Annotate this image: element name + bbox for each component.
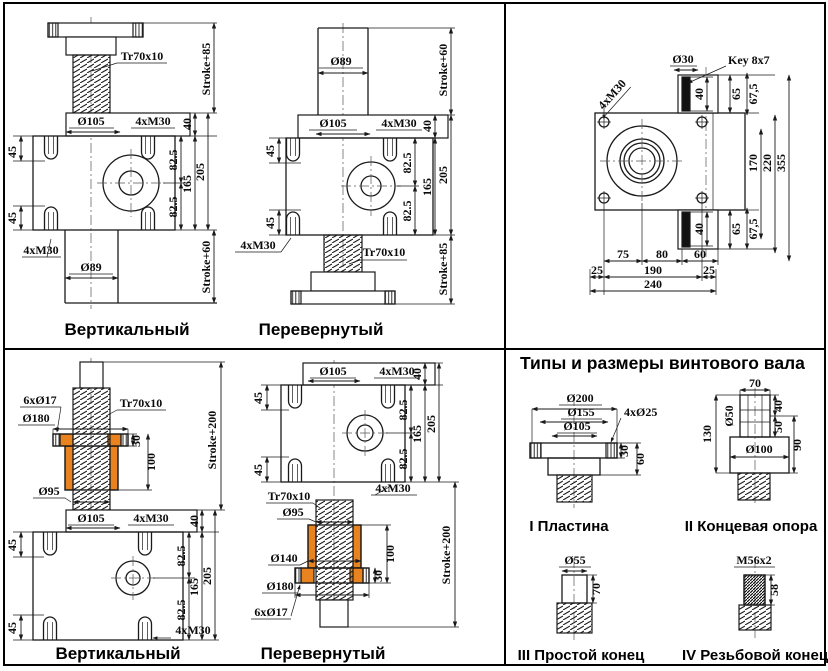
worm-shaft-bore xyxy=(342,410,388,456)
dim-label: 45 xyxy=(263,145,277,157)
dim-label: 45 xyxy=(5,212,19,224)
dim-label: Key 8x7 xyxy=(728,53,770,67)
dim-label: 130 xyxy=(700,425,714,443)
dim-label: 82.5 xyxy=(166,197,180,218)
caption-type-plain-end: III Простой конец xyxy=(518,647,645,664)
dim-label: Ø30 xyxy=(672,52,693,66)
dim-label: 220 xyxy=(760,154,774,172)
worm-shaft-bore xyxy=(97,149,165,217)
caption-type-plate: I Пластина xyxy=(529,518,609,535)
drawing-inverted-jack-safety-nut: Ø105 4xM30 45 45 82.5 82.5 40 165 205 4x… xyxy=(251,360,459,663)
caption-inverted: Перевернутый xyxy=(259,320,384,339)
dim-label: 45 xyxy=(5,146,19,158)
bolt-holes xyxy=(597,115,709,205)
dim-label: Ø55 xyxy=(564,553,585,567)
screw-rod-end xyxy=(320,600,348,627)
dim-label: Ø95 xyxy=(282,505,303,519)
dim-label: 70 xyxy=(589,583,603,595)
drawing-inverted-screw-jack: Ø89 Ø105 4xM30 45 45 4xM30 Tr70x10 82.5 … xyxy=(235,23,455,339)
dim-label: 165 xyxy=(180,175,194,193)
dim-label: 4xM30 xyxy=(240,238,275,252)
dim-label: Ø89 xyxy=(80,260,101,274)
screw-thread xyxy=(73,55,110,113)
dim-label: 4xØ25 xyxy=(624,405,657,419)
dim-label: 45 xyxy=(251,392,265,404)
dim-label: 165 xyxy=(420,178,434,196)
dim-label: 40 xyxy=(692,223,706,235)
worm-shaft-bore xyxy=(111,556,155,600)
plate xyxy=(530,443,617,458)
dim-label: 82.5 xyxy=(166,150,180,171)
dim-label: Stroke+60 xyxy=(199,241,213,294)
dim-label: 4xM30 xyxy=(381,116,416,130)
dim-label: Ø89 xyxy=(330,54,351,68)
shaft-end-type-end-support: 70 Ø50 130 40 50 Ø100 90 II Концевая опо… xyxy=(685,376,818,535)
screw-thread xyxy=(557,603,592,633)
panel-jacks-standard: Tr70x10 Ø105 4xM30 45 45 4xM30 Ø89 82.5 … xyxy=(3,3,505,348)
screw-thread xyxy=(739,605,771,630)
screw-thread xyxy=(324,235,362,272)
screw-thread xyxy=(557,475,592,502)
gearbox-body xyxy=(281,385,405,482)
dim-label: 67,5 xyxy=(746,84,760,105)
dim-label: Ø100 xyxy=(745,442,772,456)
mounting-studs xyxy=(289,385,395,482)
dim-label: 45 xyxy=(5,539,19,551)
dim-label: 4xM30 xyxy=(23,243,58,257)
dim-label: 30 xyxy=(371,570,385,582)
dim-label: Stroke+200 xyxy=(439,526,453,585)
dim-label: 65 xyxy=(729,223,743,235)
caption-type-threaded-end: IV Резьбовой конец xyxy=(682,647,828,664)
dim-label: 82.5 xyxy=(400,153,414,174)
panel-housing-face: Ø30 Key 8x7 4xM30 40 65 67,5 40 65 67,5 … xyxy=(507,3,825,348)
dim-label: 58 xyxy=(767,584,781,596)
dim-label: 45 xyxy=(263,217,277,229)
dim-label: Ø105 xyxy=(563,419,590,433)
dim-label: 4xM30 xyxy=(135,114,170,128)
dim-label: Tr70x10 xyxy=(363,245,405,259)
dim-label: 90 xyxy=(790,439,804,451)
drawing-vertical-screw-jack: Tr70x10 Ø105 4xM30 45 45 4xM30 Ø89 82.5 … xyxy=(5,17,217,339)
dim-label: 70 xyxy=(749,376,761,390)
dim-label: 30 xyxy=(617,445,631,457)
drawing-vertical-jack-safety-nut: 6xØ17 Tr70x10 Ø180 30 100 Ø95 Stroke+200… xyxy=(5,358,225,663)
dim-label: 67,5 xyxy=(746,219,760,240)
threaded-journal xyxy=(744,575,765,605)
dim-label: Ø180 xyxy=(22,411,49,425)
mounting-studs xyxy=(287,138,397,235)
screw-thread xyxy=(316,500,353,600)
dim-label: 60 xyxy=(694,247,706,261)
dim-label: 100 xyxy=(144,453,158,471)
dim-label: Tr70x10 xyxy=(268,489,310,503)
dim-label: 205 xyxy=(424,415,438,433)
dim-label: Ø50 xyxy=(722,405,736,426)
dim-label: Ø180 xyxy=(266,579,293,593)
dim-label: Ø105 xyxy=(319,364,346,378)
shaft-end-type-threaded-end: M56x2 58 IV Резьбовой конец xyxy=(682,553,828,664)
dim-label: 65 xyxy=(729,88,743,100)
caption-inverted: Перевернутый xyxy=(261,644,386,663)
caption-vertical: Вертикальный xyxy=(64,320,189,339)
dim-label: 60 xyxy=(633,453,647,465)
dim-label: M56x2 xyxy=(736,553,771,567)
caption-type-end-support: II Концевая опора xyxy=(685,518,818,535)
gearbox-body xyxy=(33,532,183,640)
dim-label: 40 xyxy=(187,515,201,527)
key-top xyxy=(682,77,690,111)
key-bottom xyxy=(682,212,690,247)
dim-label: 205 xyxy=(193,163,207,181)
dim-label: 100 xyxy=(383,545,397,563)
worm-shaft-bore xyxy=(341,156,401,216)
dim-label: Ø140 xyxy=(270,551,297,565)
dim-label: 4xM30 xyxy=(133,511,168,525)
dim-label: Ø105 xyxy=(319,116,346,130)
dim-label: 40 xyxy=(771,400,785,412)
dim-label: 170 xyxy=(746,154,760,172)
base-plate xyxy=(291,272,395,304)
mounting-studs xyxy=(44,532,152,640)
dim-label: 205 xyxy=(200,567,214,585)
dim-label: 6xØ17 xyxy=(254,605,287,619)
dim-label: 82.5 xyxy=(396,449,410,470)
dim-label: 205 xyxy=(436,166,450,184)
dim-label: 4xM30 xyxy=(175,623,210,637)
dim-label: Ø105 xyxy=(77,511,104,525)
dim-label: Ø105 xyxy=(77,114,104,128)
section-title: Типы и размеры винтового вала xyxy=(520,353,805,373)
dim-label: 50 xyxy=(771,421,785,433)
dim-label: 45 xyxy=(251,464,265,476)
drawing-sheet: Tr70x10 Ø105 4xM30 45 45 4xM30 Ø89 82.5 … xyxy=(0,0,828,671)
panel-shaft-ends: Типы и размеры винтового вала xyxy=(507,350,825,667)
dim-label: 82.5 xyxy=(400,201,414,222)
flange-circles xyxy=(600,119,684,203)
dim-label: Ø155 xyxy=(567,405,594,419)
dim-label: 30 xyxy=(129,435,143,447)
dimension-lines xyxy=(716,390,798,473)
dim-label: Ø95 xyxy=(38,484,59,498)
dim-label: 40 xyxy=(692,88,706,100)
caption-vertical: Вертикальный xyxy=(55,644,180,663)
screw-rod-end xyxy=(80,362,103,388)
screw-thread xyxy=(738,473,770,500)
dim-label: 45 xyxy=(5,622,19,634)
dim-label: 4xM30 xyxy=(375,481,410,495)
shaft-end-type-plate: Ø200 Ø155 Ø105 4xØ25 30 60 I Пластина xyxy=(529,391,657,535)
dim-label: 82.5 xyxy=(396,400,410,421)
dim-label: 165 xyxy=(410,425,424,443)
dim-label: Tr70x10 xyxy=(121,49,163,63)
dim-label: 80 xyxy=(656,247,668,261)
dim-label: Stroke+60 xyxy=(436,44,450,97)
shaft-end-type-plain-end: Ø55 70 III Простой конец xyxy=(518,553,645,664)
dim-label: Stroke+200 xyxy=(205,411,219,470)
dim-label: Stroke+85 xyxy=(199,43,213,96)
dim-label: Stroke+85 xyxy=(436,243,450,296)
dim-label: Ø200 xyxy=(566,391,593,405)
dim-label: 355 xyxy=(774,154,788,172)
dim-label: 82.5 xyxy=(174,600,188,621)
dim-label: 6xØ17 xyxy=(23,393,56,407)
dim-label: 190 xyxy=(644,263,662,277)
dim-label: 25 xyxy=(591,263,603,277)
dim-label: 40 xyxy=(420,120,434,132)
screw-thread xyxy=(73,388,110,510)
dim-label: Tr70x10 xyxy=(120,396,162,410)
dim-label: 25 xyxy=(703,263,715,277)
dim-label: 165 xyxy=(187,578,201,596)
dim-label: 40 xyxy=(180,118,194,130)
dim-label: 82.5 xyxy=(174,546,188,567)
housing-face-drawing: Ø30 Key 8x7 4xM30 40 65 67,5 40 65 67,5 … xyxy=(590,52,789,295)
dim-label: 40 xyxy=(410,368,424,380)
panel-jacks-protected: 6xØ17 Tr70x10 Ø180 30 100 Ø95 Stroke+200… xyxy=(3,350,505,667)
plain-journal xyxy=(562,575,587,603)
housing-body xyxy=(595,113,745,210)
dim-label: 240 xyxy=(644,277,662,291)
dim-label: 75 xyxy=(617,247,629,261)
